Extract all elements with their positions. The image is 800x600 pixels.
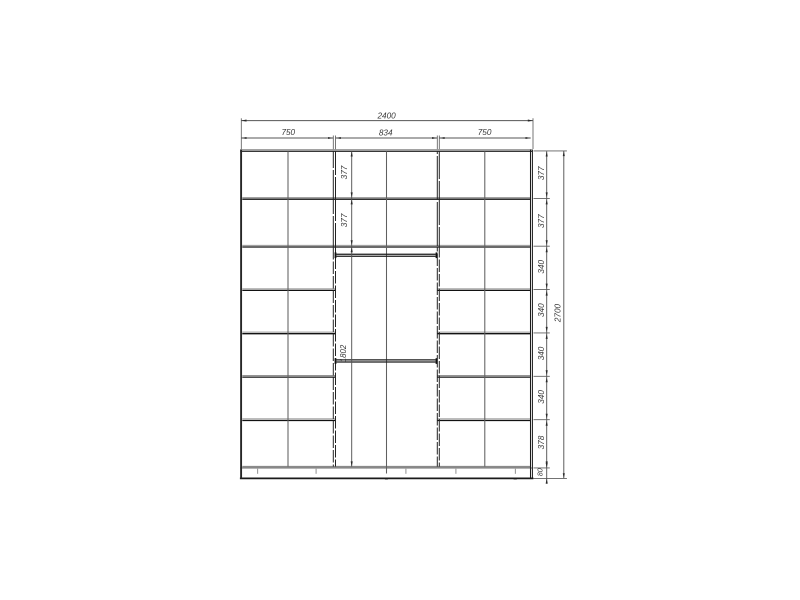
svg-text:377: 377 xyxy=(537,214,546,228)
svg-text:1802: 1802 xyxy=(339,344,348,362)
svg-text:377: 377 xyxy=(537,166,546,180)
svg-text:834: 834 xyxy=(379,128,393,137)
svg-text:378: 378 xyxy=(537,435,546,449)
svg-text:80: 80 xyxy=(535,468,544,476)
svg-text:750: 750 xyxy=(281,128,295,137)
svg-text:377: 377 xyxy=(340,213,349,227)
svg-text:340: 340 xyxy=(537,303,546,317)
svg-text:340: 340 xyxy=(537,390,546,404)
svg-text:2400: 2400 xyxy=(376,112,396,121)
svg-text:2700: 2700 xyxy=(554,303,563,323)
svg-text:340: 340 xyxy=(537,259,546,273)
svg-text:340: 340 xyxy=(537,346,546,360)
svg-text:377: 377 xyxy=(340,165,349,179)
svg-text:750: 750 xyxy=(478,128,492,137)
